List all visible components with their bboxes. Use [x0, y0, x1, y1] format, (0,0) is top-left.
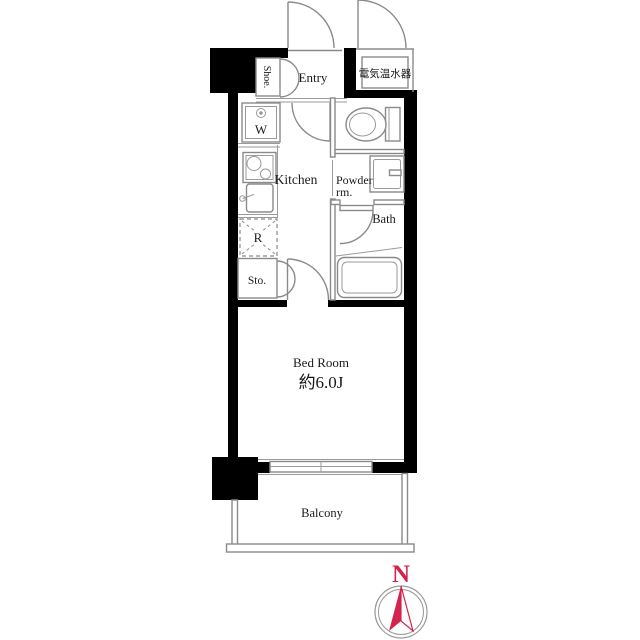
balcony-rail-right [402, 474, 408, 545]
bathtub-icon [338, 258, 402, 298]
bedroom-label: Bed Room [293, 355, 349, 370]
wall-powder-bath-right [374, 200, 404, 205]
wall-hall-powder-lower [331, 199, 336, 300]
wall-powder-bath-left [331, 200, 340, 205]
floor-plan-image: Shoe. Entry 電気温水器 W Kitchen R [0, 0, 640, 640]
wall-left [228, 93, 238, 462]
pillar-bottom-left [212, 457, 258, 500]
kitchen-label: Kitchen [275, 172, 318, 187]
shoe-door-arc-top [280, 59, 299, 78]
balcony-label: Balcony [301, 506, 343, 520]
wall-bottom-right [372, 462, 417, 473]
wall-right [404, 93, 417, 473]
wall-entry-right [344, 48, 356, 98]
bedroom-door [288, 259, 329, 300]
storage-label: Sto. [248, 275, 266, 287]
shoe-label: Shoe. [261, 66, 272, 89]
refrigerator-space: R [240, 219, 277, 256]
balcony-rail-bottom [227, 544, 415, 552]
bedroom: Bed Room 約6.0J [258, 355, 404, 472]
storage-door-arc-bottom [277, 279, 295, 297]
powder-label-line2: rm. [336, 185, 352, 199]
entry-label: Entry [299, 70, 328, 85]
toilet-room [346, 108, 400, 142]
water-heater-label: 電気温水器 [359, 67, 412, 80]
entry-door-arc [288, 2, 334, 48]
washer-nook: W [238, 103, 280, 147]
storage-door-arc-top [277, 261, 295, 279]
washer-label: W [255, 122, 268, 137]
bath-platform-edge [336, 248, 402, 257]
wall-bedroom-top-right [328, 300, 417, 307]
floor-plan-svg: Shoe. Entry 電気温水器 W Kitchen R [0, 0, 640, 640]
washbasin-handle [390, 170, 402, 176]
wall-bedroom-top-left [238, 300, 287, 307]
washer-faucet-dot [259, 111, 263, 115]
wall-toilet-powder [335, 150, 404, 154]
wall-hall-powder-upper [331, 98, 336, 157]
bath-door-leaf [340, 206, 373, 211]
north-needle-right [401, 586, 413, 631]
wall-bottom-left [258, 462, 270, 473]
refrigerator-label: R [254, 230, 263, 245]
kitchen-door-arc [292, 103, 330, 141]
toilet-tank [386, 108, 401, 142]
shoe-door-arc-bottom [280, 78, 299, 97]
bedroom-door-arc [288, 259, 329, 300]
north-label: N [392, 561, 410, 588]
water-heater-closet: 電気温水器 [356, 0, 414, 92]
bath-door-arc [340, 211, 373, 244]
pillar-top-left [210, 48, 258, 93]
washer-nook-bottom-line [238, 144, 280, 148]
bath-label: Bath [372, 212, 396, 226]
bedroom-size-label: 約6.0J [299, 373, 344, 392]
powder-room: Powder rm. [336, 156, 404, 199]
heater-door-arc [358, 0, 406, 48]
sink-icon [247, 184, 274, 212]
compass: N [375, 561, 427, 638]
storage-closet: Sto. [238, 259, 295, 299]
balcony-rail-left [232, 500, 238, 545]
north-needle-icon [389, 586, 401, 631]
bath-room: Bath [336, 206, 402, 298]
counter-bottom-line [238, 215, 278, 218]
